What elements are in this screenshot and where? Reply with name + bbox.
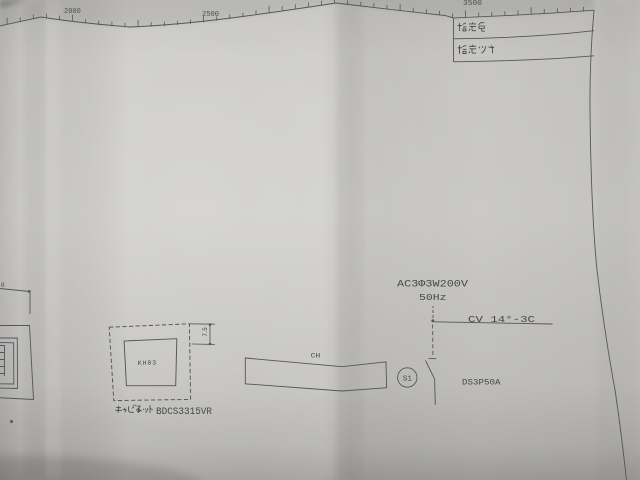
svg-text:KH03: KH03 xyxy=(138,360,157,367)
svg-text:2000: 2000 xyxy=(64,8,81,16)
svg-text:BDCS3315VR: BDCS3315VR xyxy=(156,407,212,418)
svg-text:0: 0 xyxy=(1,282,5,289)
svg-text:7.5: 7.5 xyxy=(202,327,209,337)
svg-text:2500: 2500 xyxy=(202,11,219,19)
svg-text:50Hz: 50Hz xyxy=(419,293,447,303)
svg-text:DS3P50A: DS3P50A xyxy=(462,379,501,388)
svg-text:CH: CH xyxy=(311,352,321,359)
svg-text:S1: S1 xyxy=(403,375,413,383)
svg-text:AC3Φ3W200V: AC3Φ3W200V xyxy=(397,280,468,291)
svg-text:CV 14°-3C: CV 14°-3C xyxy=(468,315,536,325)
svg-text:3500: 3500 xyxy=(463,0,482,8)
